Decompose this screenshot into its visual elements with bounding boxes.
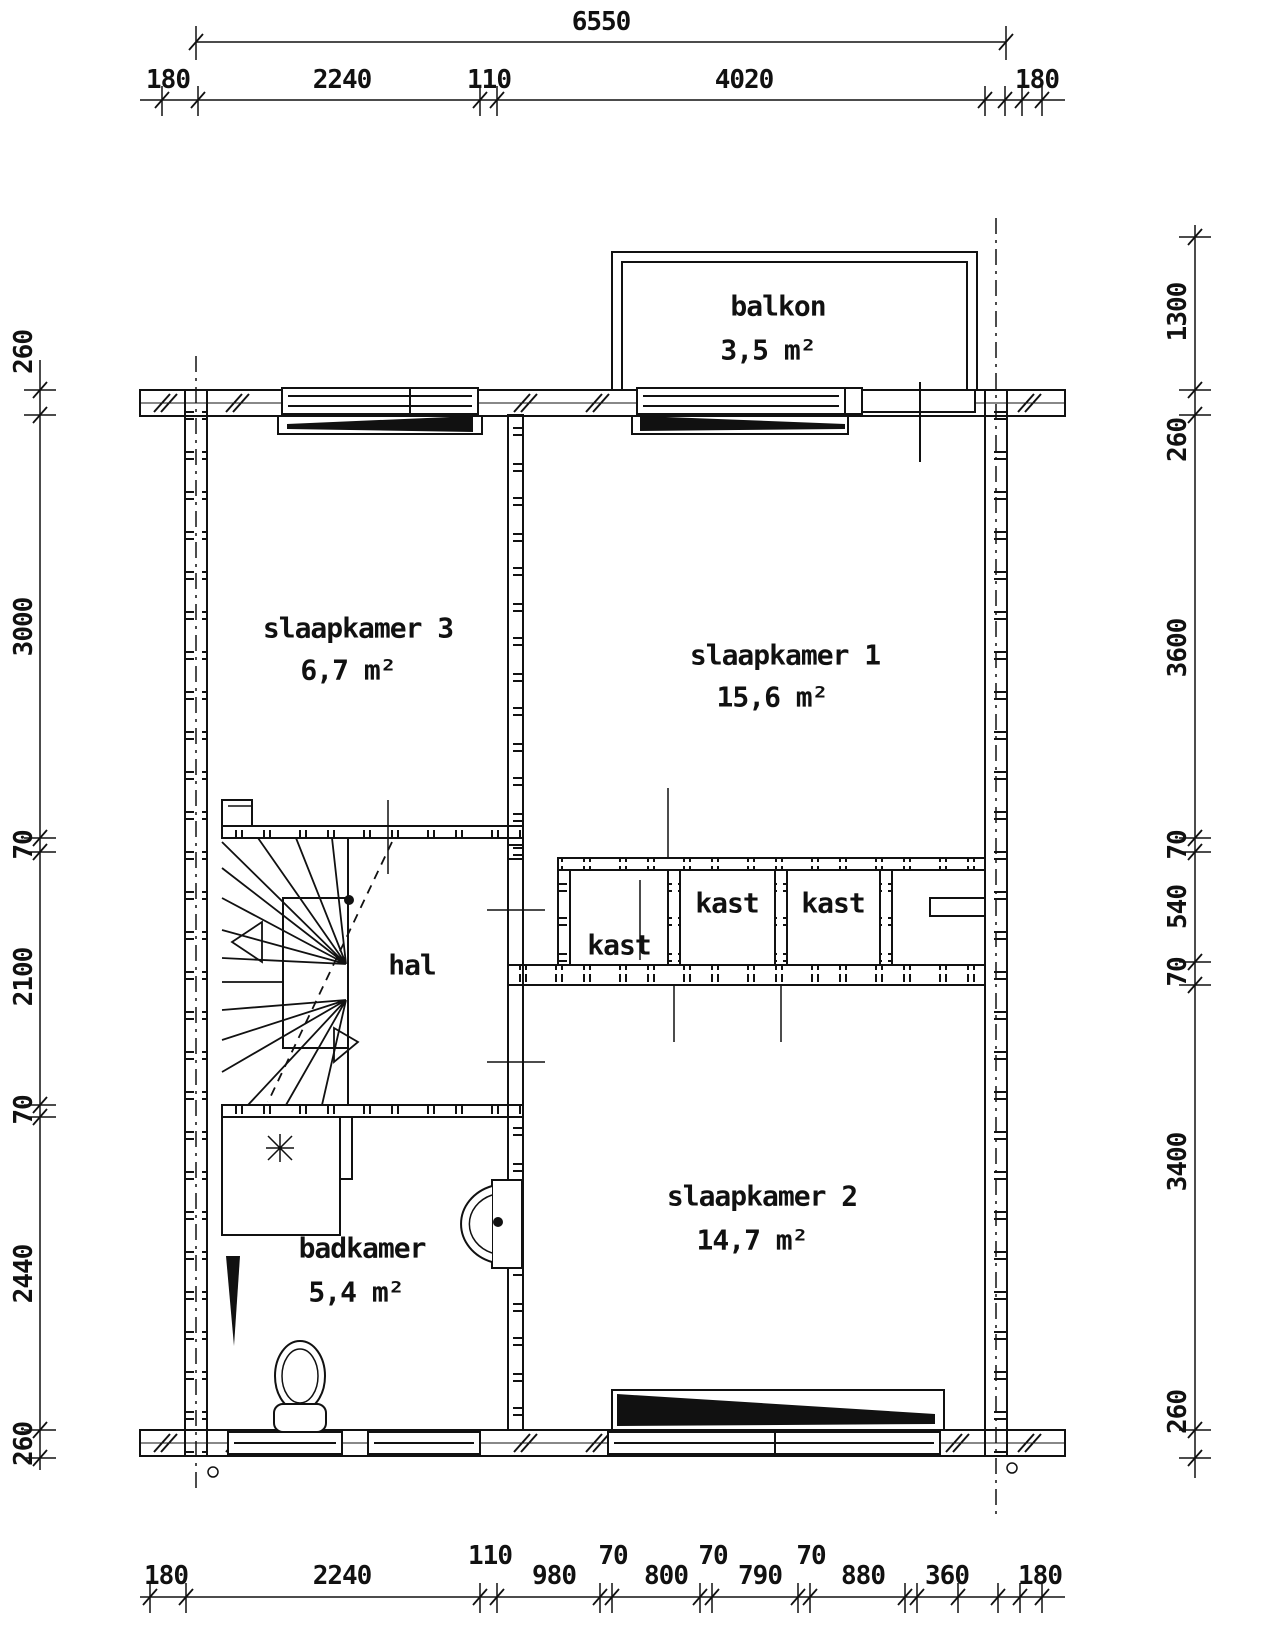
- floorplan-drawing: [0, 0, 1280, 1652]
- room-label-badkamer: badkamer: [299, 1232, 426, 1265]
- dim-left-1: 3000: [9, 598, 39, 657]
- understair-closet: [222, 1117, 352, 1235]
- dim-top-0: 180: [146, 65, 190, 95]
- door-leaf: [226, 1256, 240, 1346]
- dim-right-5: 70: [1163, 957, 1193, 986]
- window-slaapkamer3: [278, 388, 482, 434]
- survey-mark-right: [1007, 1463, 1017, 1473]
- dim-right-0: 1300: [1163, 283, 1193, 342]
- dim-top-4: 180: [1015, 65, 1059, 95]
- room-label-slaapkamer3: slaapkamer 3: [263, 612, 453, 645]
- party-wall-right: [985, 218, 1007, 1520]
- room-label-kast-left: kast: [587, 929, 650, 962]
- dim-bottom-5: 800: [644, 1561, 688, 1591]
- dim-left-4: 70: [9, 1095, 39, 1124]
- survey-mark-left: [208, 1467, 218, 1477]
- dim-bottom-1: 2240: [313, 1561, 372, 1591]
- room-label-slaapkamer2: slaapkamer 2: [667, 1180, 857, 1213]
- room-area-badkamer: 5,4 m²: [308, 1276, 403, 1309]
- dim-left-6: 260: [9, 1422, 39, 1466]
- light-point-icon: [266, 1134, 294, 1162]
- dim-left-5: 2440: [9, 1245, 39, 1304]
- room-label-slaapkamer1: slaapkamer 1: [690, 639, 880, 672]
- dim-bottom-11: 180: [1018, 1561, 1062, 1591]
- balcony-door: [845, 382, 975, 462]
- dim-bottom-6: 70: [698, 1541, 727, 1571]
- room-area-balkon: 3,5 m²: [720, 334, 815, 367]
- dim-left-0: 260: [9, 330, 39, 374]
- window-slaapkamer1: [632, 388, 848, 434]
- floorplan-page: balkon 3,5 m² slaapkamer 3 6,7 m² slaapk…: [0, 0, 1280, 1652]
- dim-bottom-0: 180: [144, 1561, 188, 1591]
- party-wall-left: [185, 356, 207, 1492]
- dim-right-4: 540: [1163, 885, 1193, 929]
- dim-top-overall: 6550: [572, 7, 631, 37]
- dim-right-7: 260: [1163, 1390, 1193, 1434]
- room-area-slaapkamer3: 6,7 m²: [300, 654, 395, 687]
- room-label-balkon: balkon: [730, 290, 825, 323]
- dim-right-1: 260: [1163, 418, 1193, 462]
- dim-right-3: 70: [1163, 830, 1193, 859]
- dim-left-3: 2100: [9, 948, 39, 1007]
- outer-walls: [140, 390, 1065, 1456]
- dim-top-3: 4020: [715, 65, 774, 95]
- room-label-kast-middle: kast: [695, 887, 758, 920]
- dim-bottom-10: 360: [925, 1561, 969, 1591]
- dim-right-2: 3600: [1163, 619, 1193, 678]
- room-label-kast-right: kast: [801, 887, 864, 920]
- dim-bottom-2: 110: [468, 1541, 512, 1571]
- toilet: [274, 1341, 326, 1432]
- dim-right-6: 3400: [1163, 1133, 1193, 1192]
- dim-bottom-7: 790: [738, 1561, 782, 1591]
- room-label-hal: hal: [388, 949, 436, 982]
- stairs: [222, 838, 392, 1105]
- dim-top-1: 2240: [313, 65, 372, 95]
- dim-bottom-8: 70: [796, 1541, 825, 1571]
- dim-bottom-9: 880: [841, 1561, 885, 1591]
- dim-top-2: 110: [467, 65, 511, 95]
- room-area-slaapkamer2: 14,7 m²: [696, 1224, 807, 1257]
- dim-bottom-4: 70: [598, 1541, 627, 1571]
- dim-left-2: 70: [9, 830, 39, 859]
- dim-bottom-3: 980: [532, 1561, 576, 1591]
- window-slaapkamer2: [608, 1390, 944, 1454]
- washbasin: [461, 1180, 522, 1268]
- room-area-slaapkamer1: 15,6 m²: [716, 681, 827, 714]
